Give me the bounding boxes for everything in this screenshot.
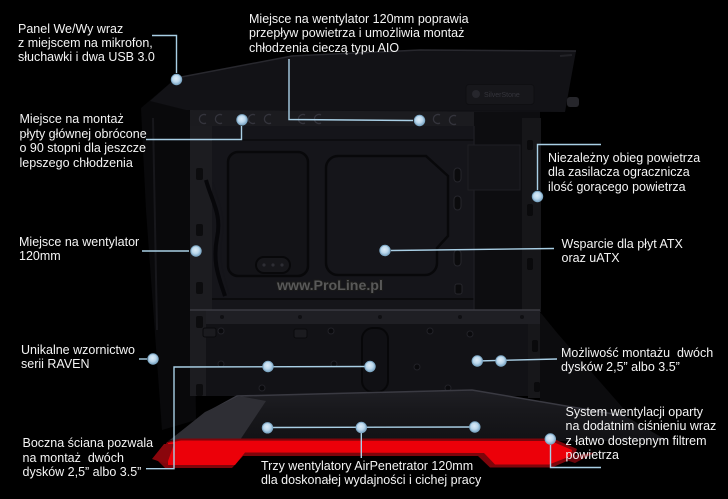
svg-text:SilverStone: SilverStone: [484, 92, 520, 99]
svg-text:www.ProLine.pl: www.ProLine.pl: [276, 278, 383, 294]
